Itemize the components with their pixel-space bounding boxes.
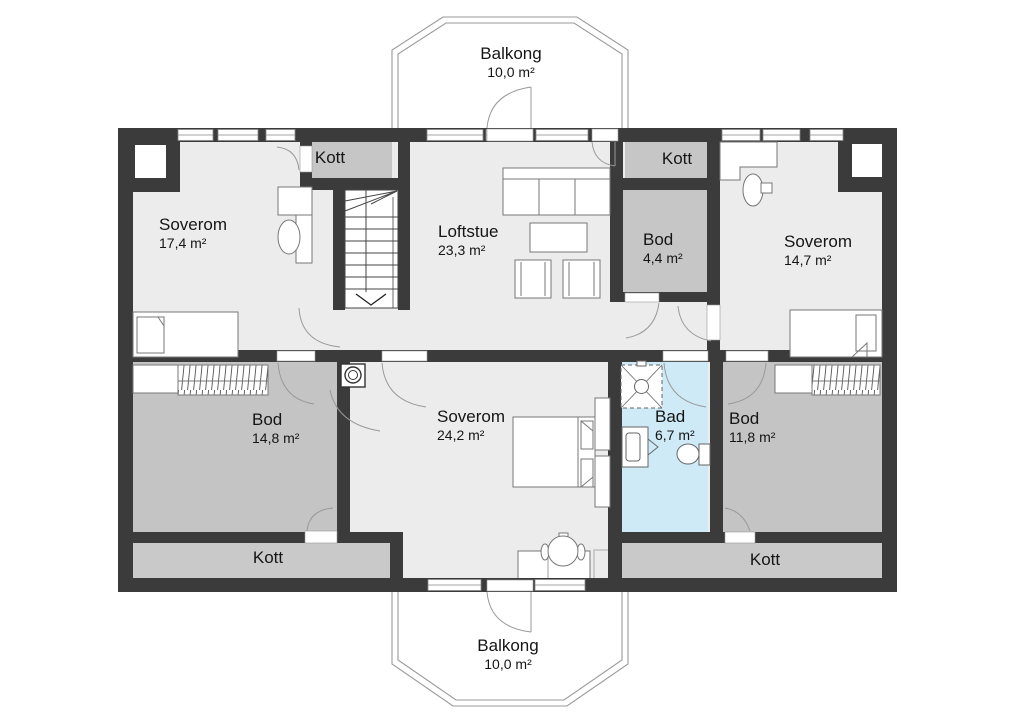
room-label-kott-bottom-right: Kott [750, 551, 780, 569]
toilet-icon [677, 444, 710, 465]
room-area: 23,3 m² [438, 242, 499, 258]
room-label-kott-top-left: Kott [315, 149, 345, 167]
room-name: Loftstue [438, 223, 499, 241]
room-area: 24,2 m² [437, 427, 505, 443]
room-name: Soverom [784, 233, 852, 251]
armchair-icon-2 [563, 260, 600, 298]
room-label-loftstue: Loftstue 23,3 m² [438, 223, 499, 258]
shelf-icon-sw [133, 365, 178, 393]
balcony-top-door-arc [487, 87, 531, 128]
room-label-bad: Bad 6,7 m² [655, 408, 695, 443]
room-name: Kott [315, 149, 345, 167]
balcony-bottom-door-arc [487, 592, 531, 632]
room-name: Balkong [477, 637, 538, 655]
room-label-soverom-ne: Soverom 14,7 m² [784, 233, 852, 268]
room-name: Soverom [159, 216, 227, 234]
dresser-icon-nw [278, 187, 312, 263]
room-name: Kott [662, 150, 692, 168]
room-label-soverom-nw: Soverom 17,4 m² [159, 216, 227, 251]
room-label-bod-sw: Bod 14,8 m² [252, 411, 299, 446]
bed-icon-nw [133, 312, 238, 357]
room-area: 10,0 m² [480, 64, 541, 80]
bed-icon-ne [790, 310, 882, 357]
sofa-icon [503, 168, 610, 215]
nightstand-icon-2 [595, 456, 610, 507]
room-area: 4,4 m² [643, 250, 683, 266]
shower-icon [621, 361, 662, 408]
room-label-bod-small: Bod 4,4 m² [643, 231, 683, 266]
room-name: Balkong [480, 45, 541, 63]
room-area: 6,7 m² [655, 427, 695, 443]
room-label-kott-bottom-left: Kott [253, 549, 283, 567]
room-area: 14,8 m² [252, 430, 299, 446]
room-label-balkong-top: Balkong 10,0 m² [480, 45, 541, 80]
room-name: Bod [252, 411, 299, 429]
room-label-balkong-bottom: Balkong 10,0 m² [477, 637, 538, 672]
room-area: 14,7 m² [784, 252, 852, 268]
armchair-icon-1 [515, 260, 551, 298]
wardrobe-hatch-icon-sw [178, 365, 268, 395]
shelf-icon-se [775, 365, 812, 393]
room-area: 11,8 m² [729, 429, 775, 445]
room-area: 17,4 m² [159, 235, 227, 251]
room-area: 10,0 m² [477, 656, 538, 672]
stairs-icon [345, 190, 398, 308]
coffee-table-icon [530, 223, 587, 252]
washer-icon [341, 364, 365, 387]
floor-plan: Balkong 10,0 m² Kott Soverom 17,4 m² Lof… [0, 0, 1018, 720]
room-name: Bod [729, 410, 775, 428]
room-name: Bad [655, 408, 695, 426]
floor-plan-drawing [0, 0, 1018, 720]
room-label-bod-se: Bod 11,8 m² [729, 410, 775, 445]
room-name: Soverom [437, 408, 505, 426]
room-label-kott-top-right: Kott [662, 150, 692, 168]
room-name: Kott [750, 551, 780, 569]
room-name: Bod [643, 231, 683, 249]
nightstand-icon-1 [595, 398, 610, 450]
room-name: Kott [253, 549, 283, 567]
room-label-soverom-s: Soverom 24,2 m² [437, 408, 505, 443]
wardrobe-hatch-icon-se [812, 365, 880, 395]
